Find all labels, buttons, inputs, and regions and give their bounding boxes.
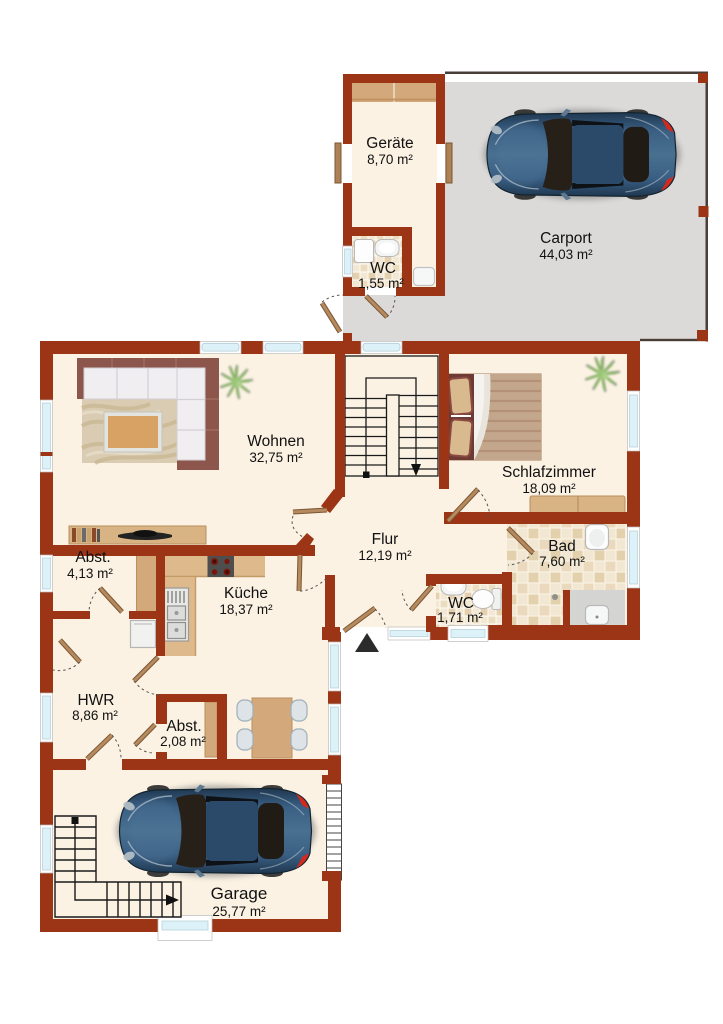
svg-text:32,75 m²: 32,75 m² (249, 450, 303, 465)
svg-text:1,71 m²: 1,71 m² (437, 610, 483, 625)
svg-text:25,77 m²: 25,77 m² (212, 904, 266, 919)
svg-text:18,09 m²: 18,09 m² (522, 481, 576, 496)
svg-text:7,60 m²: 7,60 m² (539, 554, 585, 569)
svg-text:12,19 m²: 12,19 m² (358, 548, 412, 563)
svg-text:4,13 m²: 4,13 m² (67, 566, 113, 581)
svg-text:1,55 m²: 1,55 m² (358, 276, 404, 291)
svg-text:Garage: Garage (211, 884, 268, 903)
svg-text:Küche: Küche (224, 585, 268, 602)
svg-text:44,03 m²: 44,03 m² (539, 247, 593, 262)
svg-text:Schlafzimmer: Schlafzimmer (502, 464, 596, 481)
svg-text:WC: WC (370, 260, 396, 277)
svg-text:Abst.: Abst. (166, 718, 201, 735)
svg-text:2,08 m²: 2,08 m² (160, 734, 206, 749)
svg-text:Bad: Bad (548, 538, 576, 555)
svg-text:Abst.: Abst. (75, 549, 110, 566)
svg-text:Carport: Carport (540, 230, 592, 247)
svg-text:8,86 m²: 8,86 m² (72, 708, 118, 723)
svg-text:18,37 m²: 18,37 m² (219, 602, 273, 617)
svg-text:8,70 m²: 8,70 m² (367, 152, 413, 167)
svg-text:HWR: HWR (77, 692, 114, 709)
svg-text:Wohnen: Wohnen (247, 433, 304, 450)
svg-text:Flur: Flur (372, 531, 399, 548)
svg-text:Geräte: Geräte (366, 135, 413, 152)
